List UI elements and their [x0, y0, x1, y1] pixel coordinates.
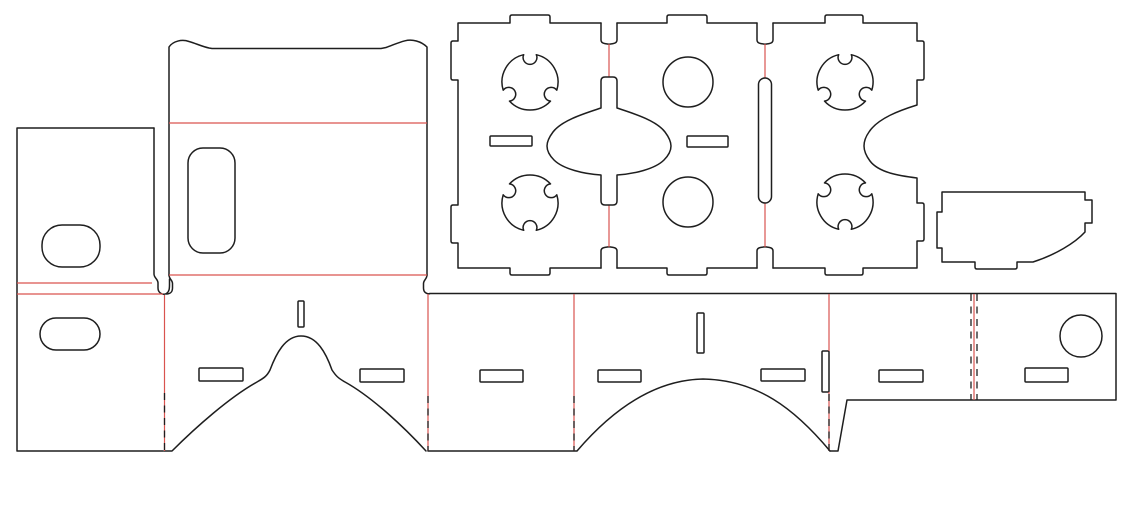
- lens-plate-center-rect: [687, 136, 728, 147]
- body-strip: [164, 294, 1116, 452]
- lens-plate-left: [451, 15, 601, 275]
- body-strip-rect: [1025, 368, 1068, 382]
- body-strip-path: [430, 294, 1117, 452]
- body-strip-rect: [879, 370, 923, 382]
- lens-plate-center: [617, 15, 757, 275]
- body-strip-path: [164, 336, 426, 451]
- lens-plate-center-circle: [663, 57, 713, 107]
- body-strip-rect: [822, 351, 829, 392]
- panel-hinge-left-path: [547, 77, 671, 205]
- lens-plate-center-circle: [663, 177, 713, 227]
- top-flap-path: [169, 40, 427, 275]
- side-flap-left-path: [17, 128, 163, 451]
- side-flap-left-stadium: [42, 225, 100, 267]
- side-flap-left-path: [154, 128, 170, 294]
- body-strip-rect: [199, 368, 243, 381]
- body-strip-rect: [761, 369, 805, 381]
- panel-hinge-left-path: [601, 23, 617, 44]
- body-strip-rect: [360, 369, 404, 382]
- lens-plate-left-notched: [502, 175, 558, 230]
- panel-hinge-left-path: [601, 247, 617, 268]
- lens-plate-right-notched: [817, 55, 873, 110]
- side-tab-path: [937, 192, 1092, 269]
- panel-hinge-right-path: [757, 23, 773, 44]
- body-strip-circle: [1060, 315, 1102, 357]
- body-strip-path: [428, 379, 830, 451]
- top-flap-stadium: [188, 148, 235, 253]
- top-flap: [167, 40, 430, 294]
- lens-plate-right: [773, 15, 924, 275]
- die-cut-template: [0, 0, 1132, 505]
- template-canvas: [0, 0, 1132, 505]
- side-flap-left-stadium: [40, 318, 100, 350]
- body-strip-rect: [480, 370, 523, 382]
- body-strip-rect: [697, 313, 704, 353]
- lens-plate-right-path: [773, 15, 924, 275]
- lens-plate-left-rect: [490, 136, 532, 146]
- panel-hinge-right-stadium: [759, 78, 772, 203]
- side-tab: [937, 192, 1092, 269]
- panel-hinge-right: [757, 23, 773, 268]
- lens-plate-center-path: [617, 268, 757, 275]
- lens-plate-center-path: [617, 15, 757, 23]
- top-flap-path: [424, 275, 430, 294]
- lens-plate-left-path: [451, 15, 601, 275]
- lens-plate-right-notched: [817, 174, 873, 229]
- body-strip-rect: [598, 370, 641, 382]
- panel-hinge-left: [547, 23, 671, 268]
- body-strip-rect: [298, 301, 304, 327]
- side-flap-left: [17, 128, 170, 451]
- panel-hinge-right-path: [757, 247, 773, 268]
- lens-plate-left-notched: [502, 55, 558, 110]
